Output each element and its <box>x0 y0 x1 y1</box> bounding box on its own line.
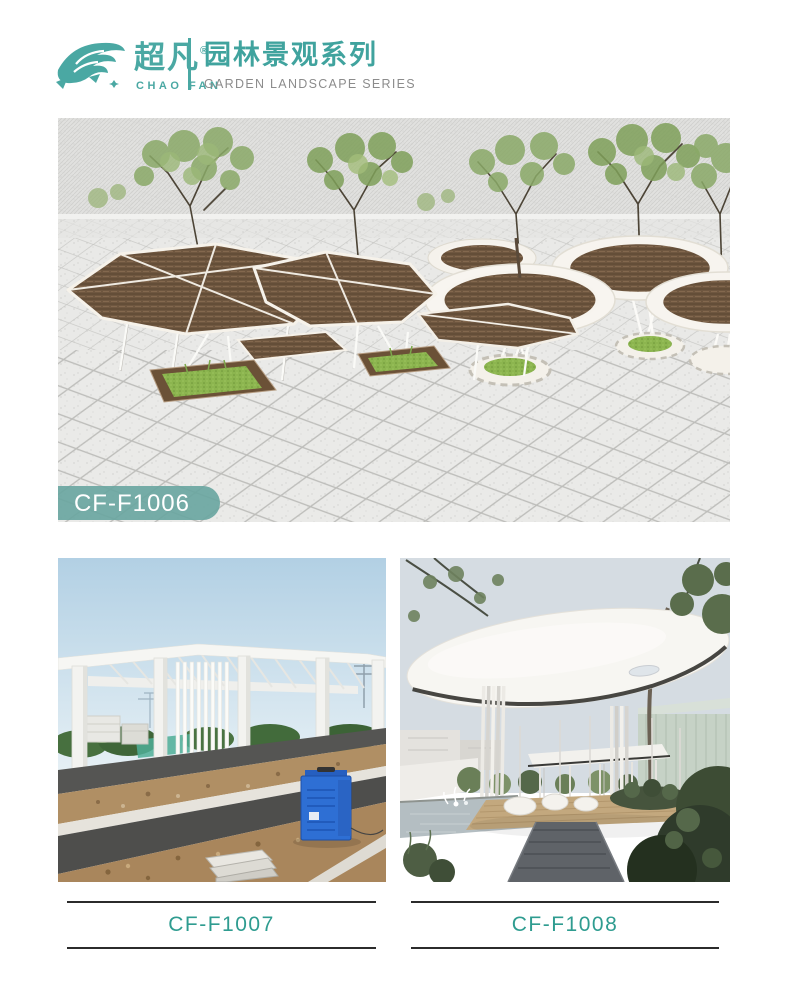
catalog-page: 超凡® CHAO FAN 园林景观系列 GARDEN LANDSCAPE SER… <box>0 0 796 1000</box>
product-photo-cf-f1008 <box>400 558 730 882</box>
product-render-cf-f1006: CF-F1006 <box>58 118 730 522</box>
falcon-logo-icon <box>52 36 132 98</box>
code-label-cf-f1008: CF-F1008 <box>411 901 719 949</box>
product-photo-cf-f1007 <box>58 558 386 882</box>
product-code-1008: CF-F1008 <box>512 913 619 937</box>
header: 超凡® CHAO FAN 园林景观系列 GARDEN LANDSCAPE SER… <box>0 0 796 118</box>
code-label-cf-f1007: CF-F1007 <box>67 901 376 949</box>
product-code-1006: CF-F1006 <box>74 490 190 517</box>
series-title-cn: 园林景观系列 <box>204 42 378 69</box>
product-code-badge: CF-F1006 <box>58 486 220 520</box>
header-divider <box>188 38 191 90</box>
logo-cn-text: 超凡® <box>134 42 208 73</box>
product-code-1007: CF-F1007 <box>168 913 275 937</box>
series-title-en: GARDEN LANDSCAPE SERIES <box>204 77 416 91</box>
